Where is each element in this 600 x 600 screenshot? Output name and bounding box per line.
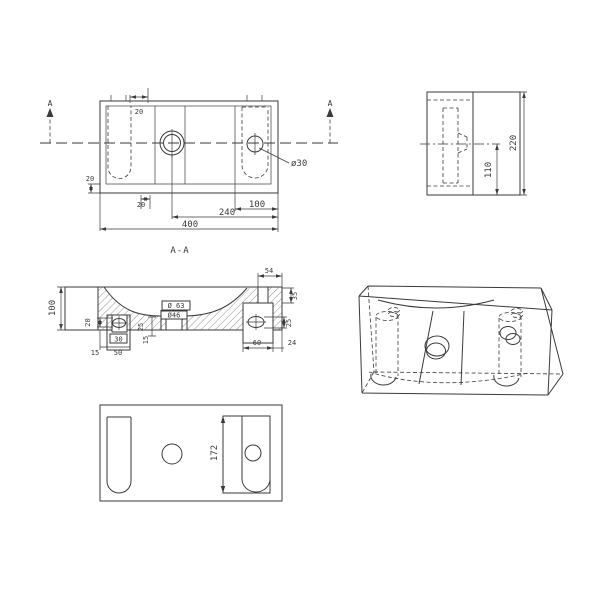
dim-left-20: 20 bbox=[86, 175, 94, 183]
section-title: A-A bbox=[170, 246, 189, 256]
dim-100: 100 bbox=[249, 200, 265, 210]
dim-35: 35 bbox=[291, 292, 299, 300]
side-hidden-slot bbox=[443, 108, 458, 183]
bottom-view: 172 bbox=[100, 405, 282, 501]
dim-110: 110 bbox=[484, 162, 494, 178]
dim-top-20: 20 bbox=[135, 108, 143, 116]
section-marker-right: A bbox=[328, 99, 333, 108]
bottom-faucet-hole bbox=[162, 444, 182, 464]
dim-25b: 25 bbox=[285, 319, 293, 327]
dim-sec-50: 50 bbox=[114, 349, 122, 357]
mount-hole-3d bbox=[500, 327, 516, 340]
dim-400: 400 bbox=[182, 220, 198, 230]
section-marker-left: A bbox=[48, 99, 53, 108]
dim-sec-100: 100 bbox=[48, 300, 58, 316]
bottom-boss bbox=[223, 416, 270, 493]
drain-inner-label: Ø46 bbox=[168, 312, 181, 320]
bottom-right-slot bbox=[242, 416, 270, 492]
section-view: A-A 30 Ø 63 Ø46 100 20 bbox=[48, 246, 299, 357]
dim-172: 172 bbox=[210, 445, 220, 461]
side-view: 110 220 bbox=[420, 92, 527, 195]
dim-220: 220 bbox=[509, 135, 519, 151]
section-arrow-left bbox=[47, 108, 54, 117]
dim-240: 240 bbox=[219, 208, 235, 218]
plan-view: A A ø30 20 20 20 100 240 bbox=[40, 88, 338, 232]
technical-drawing-sheet: A A ø30 20 20 20 100 240 bbox=[0, 0, 600, 600]
drawing-svg: A A ø30 20 20 20 100 240 bbox=[0, 0, 600, 600]
dim-bottom-20: 20 bbox=[137, 201, 145, 209]
hole-label: ø30 bbox=[291, 159, 307, 169]
perspective-view bbox=[359, 286, 563, 395]
section-arrow-right bbox=[327, 108, 334, 117]
dim-24: 24 bbox=[288, 339, 296, 347]
channel-edges bbox=[419, 311, 464, 385]
dim-sec-15b: 15 bbox=[142, 336, 150, 344]
dim-sec-25: 25 bbox=[137, 323, 145, 331]
bottom-left-slot bbox=[107, 417, 131, 493]
plan-left-slot bbox=[108, 106, 131, 179]
plan-outer-outline bbox=[100, 101, 278, 193]
bottom-mount-hole bbox=[245, 445, 261, 461]
dim-60: 60 bbox=[253, 339, 261, 347]
dim-54: 54 bbox=[265, 267, 273, 275]
drain-3d-inner bbox=[427, 343, 446, 359]
dim-sec-20: 20 bbox=[84, 318, 92, 326]
side-drain-hidden bbox=[458, 133, 467, 153]
right-slot-3d-bottom bbox=[494, 375, 519, 386]
bottom-outline bbox=[100, 405, 282, 501]
right-slot-3d-top bbox=[499, 313, 521, 322]
dim-30: 30 bbox=[114, 336, 122, 344]
dim-sec-15: 15 bbox=[91, 349, 99, 357]
hole-leader-line bbox=[259, 148, 289, 163]
left-slot-3d-top bbox=[376, 312, 398, 321]
drain-outer-label: Ø 63 bbox=[168, 302, 185, 310]
